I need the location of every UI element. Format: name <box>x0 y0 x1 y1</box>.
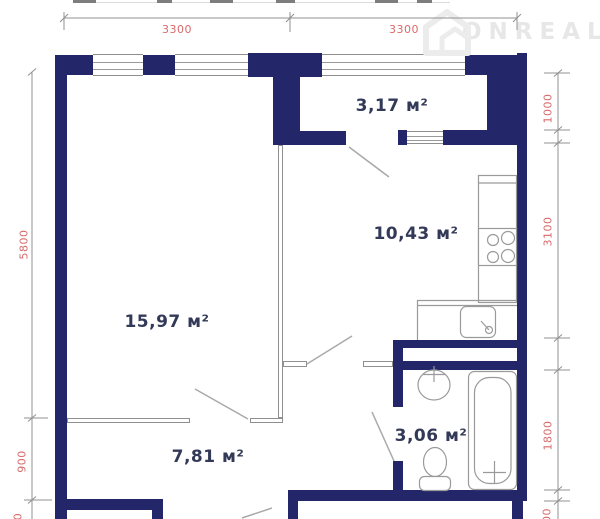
cropped-top-fragment <box>417 0 432 3</box>
room-label-balcony: 3,17 м² <box>322 96 462 116</box>
dim-right-partial: 00 <box>541 493 554 519</box>
kitchen-door-swing <box>307 336 352 364</box>
wall-balcony-divider <box>273 75 300 132</box>
living-door-swing <box>195 389 248 419</box>
wall-balcony-bottom-right <box>443 130 517 145</box>
wall-top-pier-b <box>143 55 175 75</box>
kitchen-counter-bottom <box>418 301 518 341</box>
room-label-bathroom: 3,06 м² <box>361 426 501 446</box>
partition-living-kitchen <box>278 145 283 418</box>
stove-burner <box>502 250 515 263</box>
dim-left-1: 5800 <box>18 222 31 268</box>
wall-top-pier-c <box>248 53 322 77</box>
window-balcony-inner <box>407 131 443 144</box>
cropped-top-fragment <box>157 0 172 3</box>
window-living-1 <box>93 54 143 76</box>
stove-burner <box>488 252 499 263</box>
partition-living-hall-right <box>250 418 283 423</box>
wall-kitchen-bottom <box>395 340 527 348</box>
room-label-kitchen: 10,43 м² <box>346 224 486 244</box>
entry-door-swing <box>242 508 272 518</box>
floor-plan: ONREALT <box>0 0 600 519</box>
wall-top-pier-a <box>55 55 93 75</box>
wall-balcony-bottom-mid <box>398 130 407 145</box>
cropped-top-fragment <box>276 0 295 3</box>
wall-hall-bottom <box>67 499 163 510</box>
toilet-bowl <box>424 448 447 477</box>
room-label-living: 15,97 м² <box>97 312 237 332</box>
watermark: ONREALT <box>418 6 600 58</box>
dim-left-2: 900 <box>16 439 29 485</box>
wall-below-bath-left <box>288 501 298 519</box>
kitchen-fixtures <box>418 176 518 341</box>
wall-bathroom-left-upper <box>393 340 403 407</box>
dim-top-1: 3300 <box>154 23 200 36</box>
dim-right-3: 1800 <box>542 413 555 459</box>
stove-burner <box>502 232 515 245</box>
wall-left-outer <box>55 55 67 519</box>
wall-bathroom-left-lower <box>393 461 403 493</box>
window-living-2 <box>175 54 248 76</box>
cropped-top-fragment <box>210 0 233 3</box>
dim-right-2: 3100 <box>542 209 555 255</box>
balcony-door-swing <box>349 147 389 177</box>
watermark-brand: ONREALT <box>462 19 600 45</box>
dim-top-2: 3300 <box>381 23 427 36</box>
dim-left-partial: 0 <box>12 494 25 519</box>
room-label-hallway: 7,81 м² <box>138 447 278 467</box>
toilet-tank <box>420 477 451 491</box>
kitchen-sink-tap <box>486 327 493 334</box>
wall-right-outer-lower <box>512 501 523 519</box>
wall-hall-bottom-right <box>152 510 163 519</box>
wall-bathroom-bottom <box>288 490 527 501</box>
stove-burner <box>488 235 499 246</box>
kitchen-sink <box>461 307 496 338</box>
wall-bathroom-top <box>403 361 527 370</box>
wall-right-outer <box>517 53 527 501</box>
washbasin <box>418 370 450 400</box>
cropped-top-fragment <box>375 0 398 3</box>
cropped-top-fragment <box>73 0 96 3</box>
partition-living-hall-left <box>67 418 190 423</box>
partition-kitchen-hall-left <box>283 361 307 367</box>
partition-kitchen-hall-right <box>363 361 393 367</box>
wall-balcony-bottom-left <box>273 131 346 145</box>
dim-right-1: 1000 <box>542 86 555 132</box>
